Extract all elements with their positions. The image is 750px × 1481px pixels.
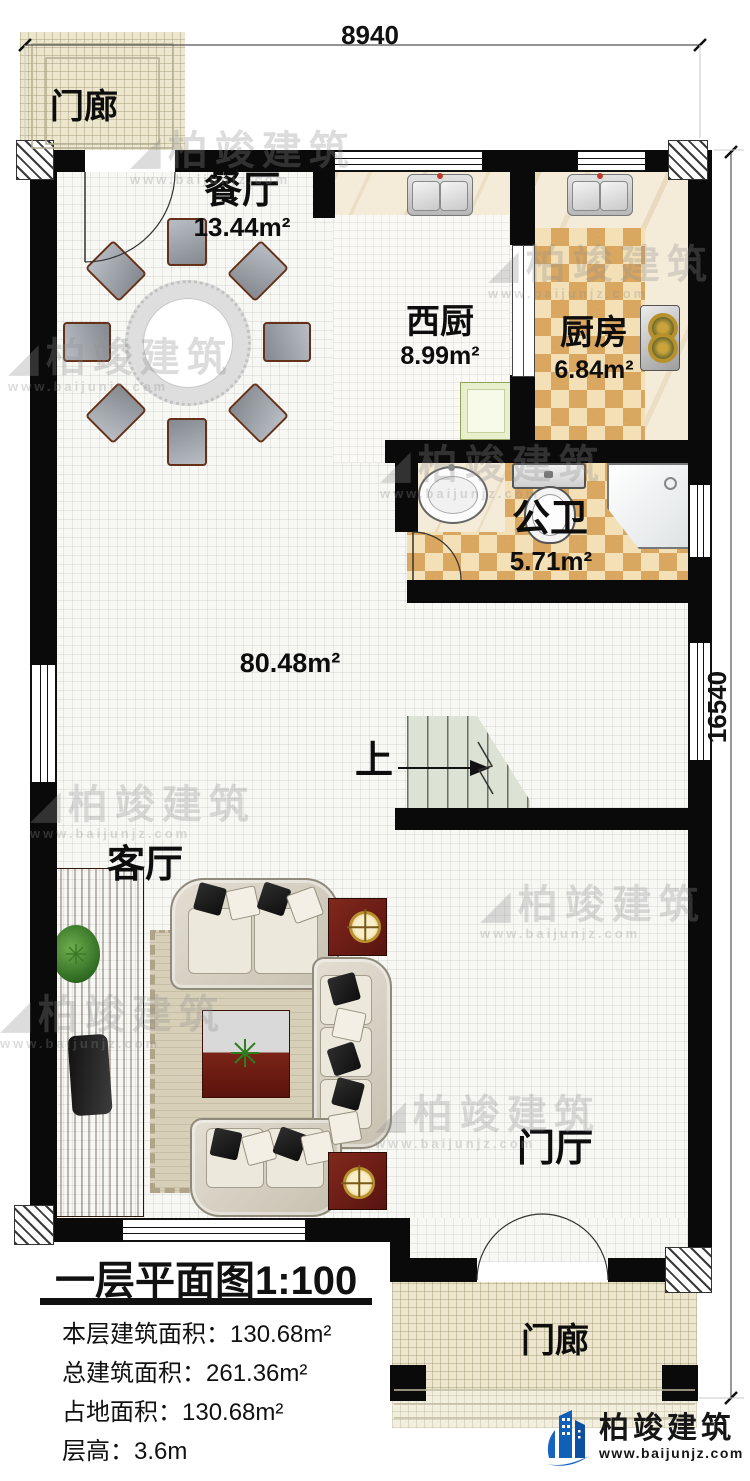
room-label-porch-top: 门廊	[42, 90, 126, 126]
room-label-bathroom: 公卫	[498, 500, 602, 540]
floor-plan: 门廊 餐厅 13.44m² 西厨 8.99m² 厨房 6.84m² 公卫 5.7…	[0, 0, 750, 1481]
room-area-bathroom: 5.71m²	[486, 546, 616, 577]
info-line: 占地面积：130.68m²	[62, 1392, 283, 1427]
logo-building-icon	[545, 1406, 591, 1466]
hall-area-label: 80.48m²	[230, 648, 350, 679]
room-label-porch-bottom: 门廊	[503, 1324, 607, 1360]
room-label-living: 客厅	[95, 846, 195, 886]
info-line: 总建筑面积：261.36m²	[62, 1353, 307, 1388]
dim-top-label: 8940	[328, 20, 412, 51]
logo-site: www.baijunjz.com	[599, 1445, 744, 1461]
brand-logo: 柏竣建筑 www.baijunjz.com	[545, 1406, 744, 1466]
logo-text: 柏竣建筑	[599, 1412, 744, 1445]
room-label-kitchen: 厨房	[550, 316, 638, 352]
info-line: 本层建筑面积：130.68m²	[62, 1314, 331, 1349]
room-label-dining: 餐厅	[186, 172, 298, 212]
room-label-foyer: 门厅	[505, 1130, 605, 1170]
stairs-up-label: 上	[352, 742, 396, 782]
room-area-dining: 13.44m²	[182, 212, 302, 243]
info-title-underline	[40, 1298, 372, 1305]
info-line: 层高：3.6m	[62, 1431, 187, 1466]
room-label-west-kitchen: 西厨	[393, 305, 487, 341]
dim-right-label: 16540	[702, 652, 732, 762]
room-area-kitchen: 6.84m²	[548, 356, 640, 385]
room-area-west-kitchen: 8.99m²	[390, 342, 490, 371]
